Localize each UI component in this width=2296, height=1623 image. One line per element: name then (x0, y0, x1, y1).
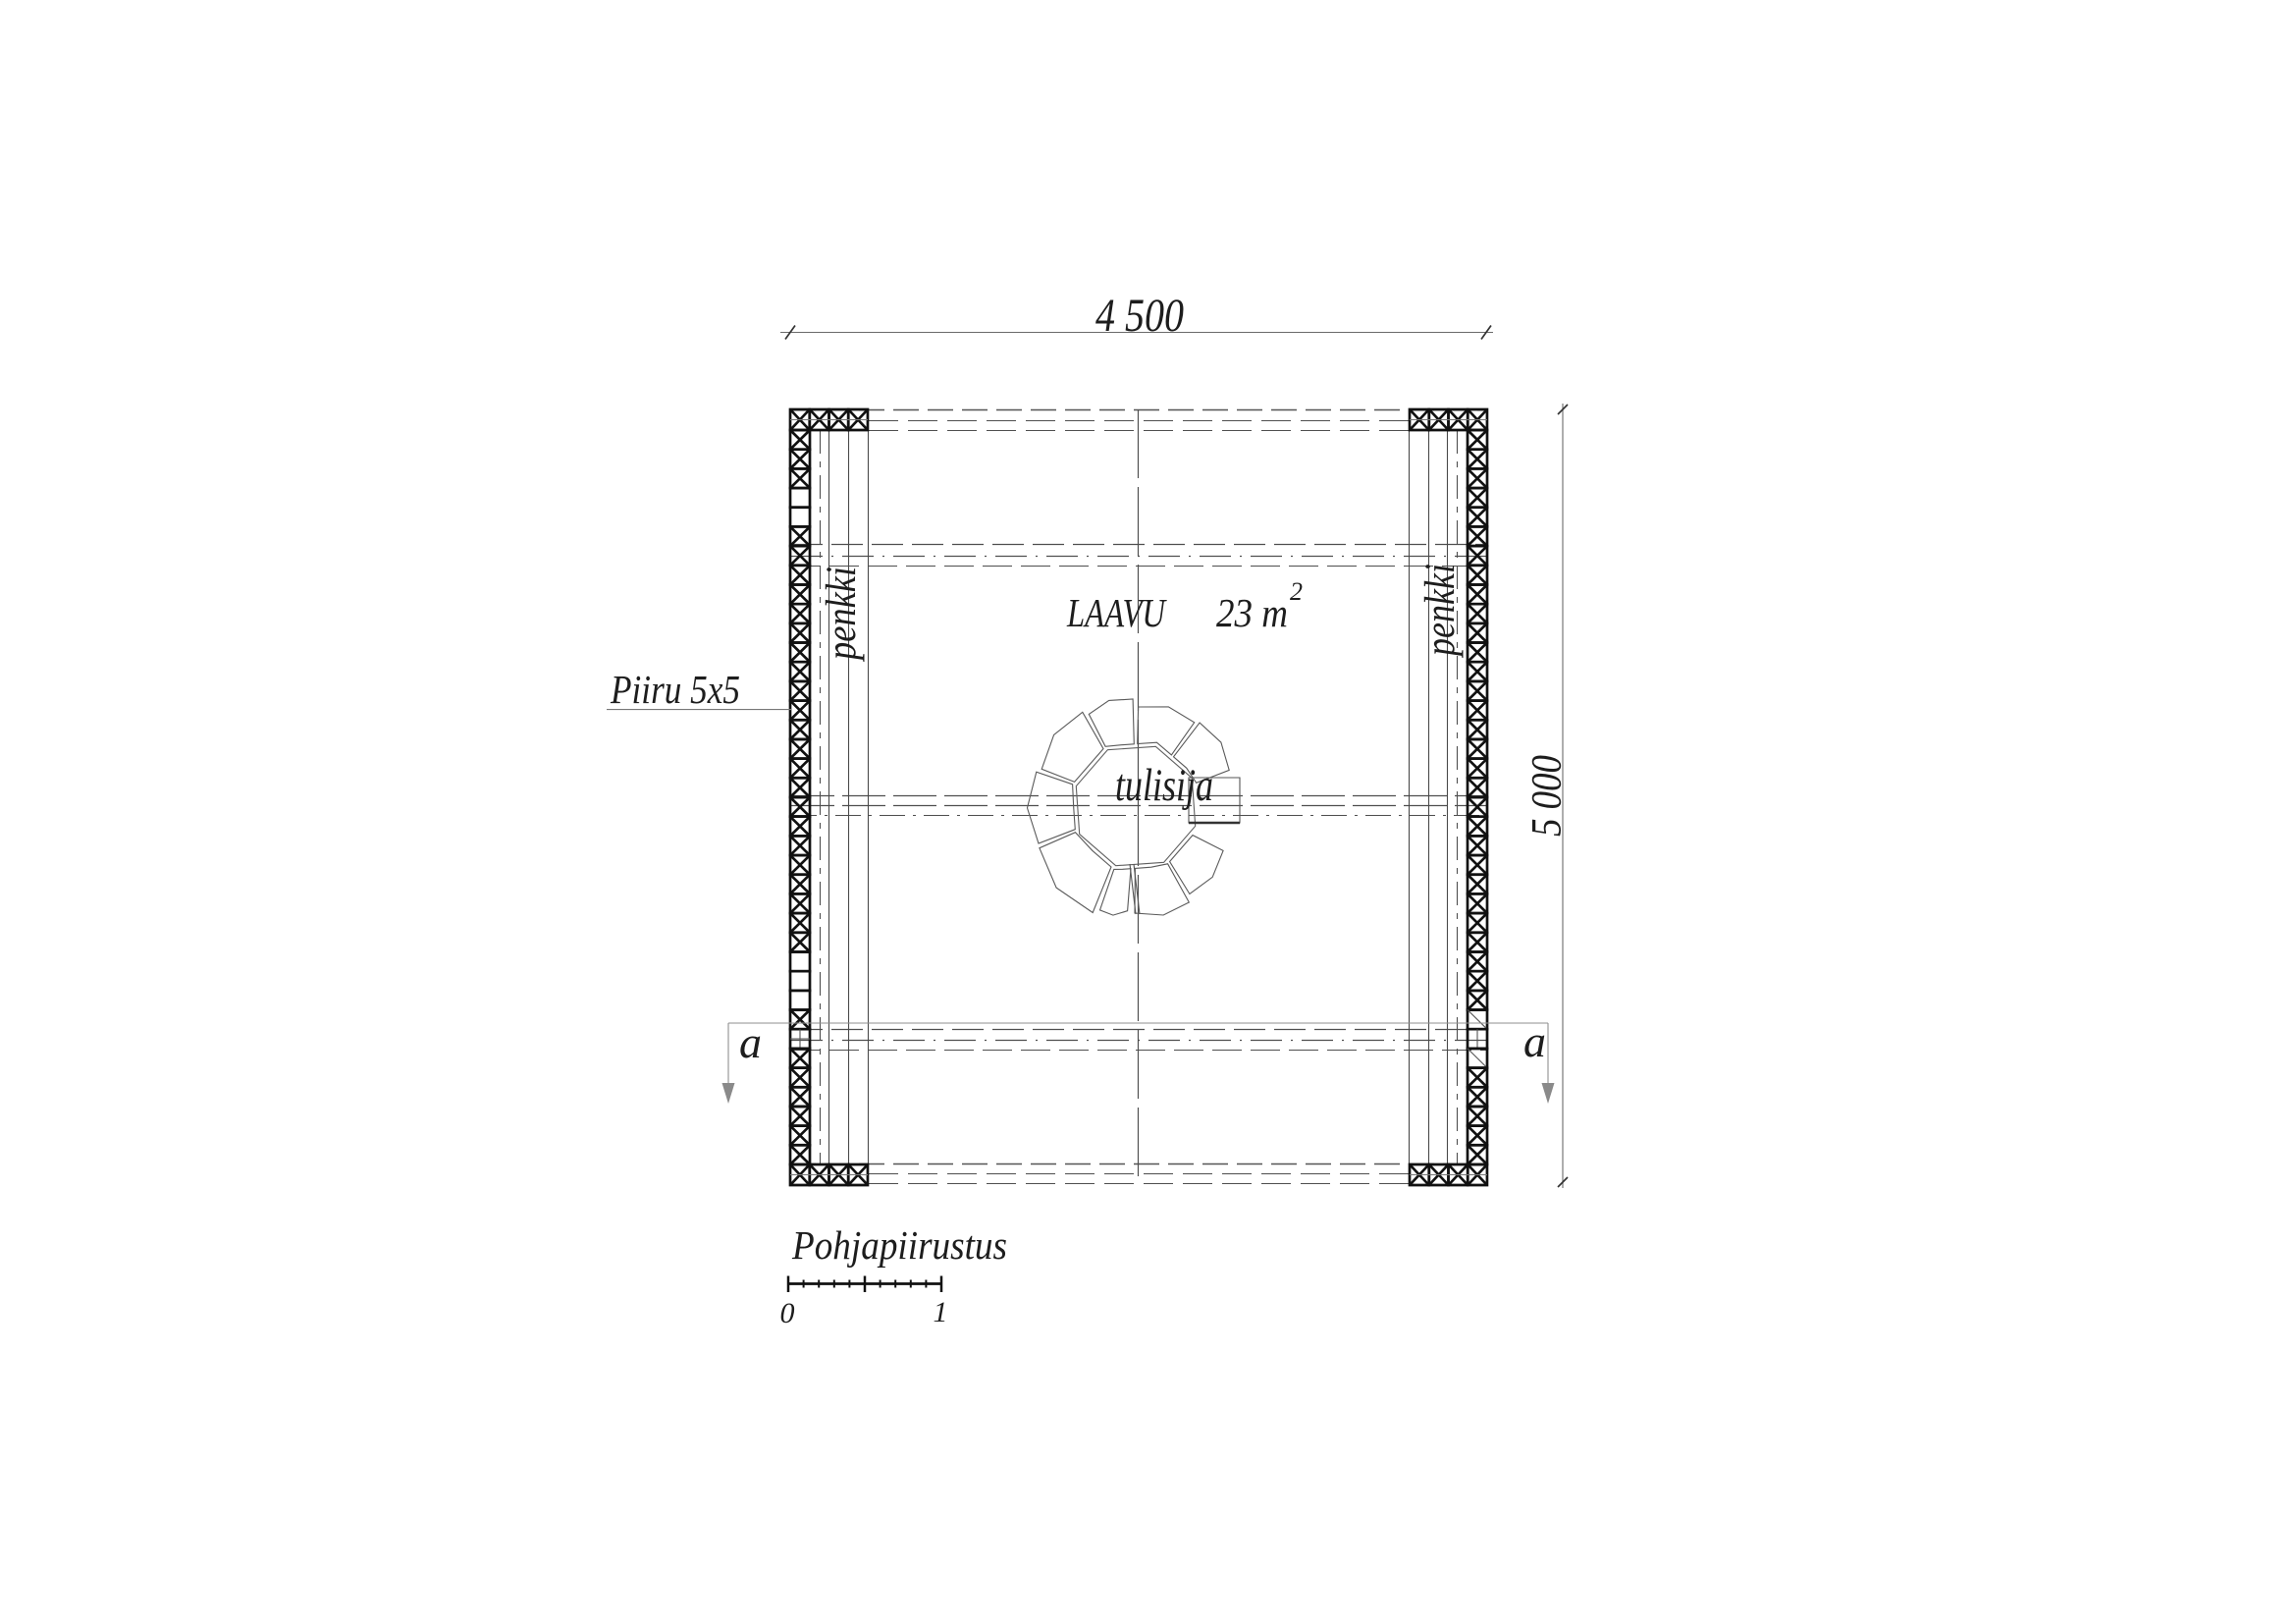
svg-text:LAAVU: LAAVU (1066, 590, 1167, 635)
svg-text:Pohjapiirustus: Pohjapiirustus (791, 1222, 1007, 1268)
svg-text:0: 0 (780, 1297, 795, 1329)
svg-text:5 000: 5 000 (1524, 755, 1571, 837)
svg-text:penkki: penkki (1417, 564, 1464, 659)
svg-text:a: a (1523, 1016, 1546, 1066)
svg-text:tulisija: tulisija (1115, 760, 1213, 811)
svg-text:4 500: 4 500 (1095, 290, 1184, 342)
svg-text:penkki: penkki (819, 567, 865, 663)
svg-text:23 m: 23 m (1216, 590, 1288, 635)
svg-text:Piiru 5x5: Piiru 5x5 (610, 667, 740, 712)
svg-text:1: 1 (934, 1296, 948, 1328)
svg-text:2: 2 (1290, 577, 1303, 606)
svg-text:a: a (739, 1017, 762, 1067)
